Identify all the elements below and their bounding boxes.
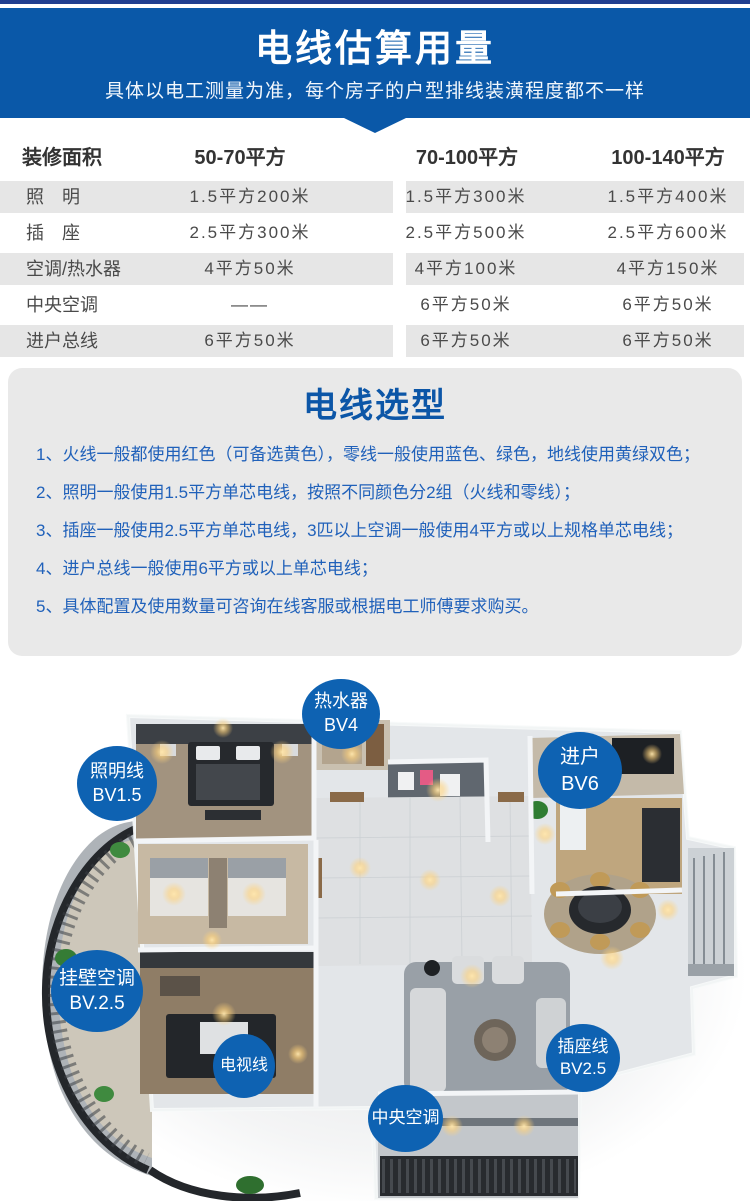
floorplan-label-lighting-line: 照明线 BV1.5 (77, 746, 157, 821)
label-line: 挂壁空调 (59, 966, 135, 991)
label-line: 进户 (560, 744, 600, 770)
row-label: 插 座 (0, 215, 186, 251)
page: 电线估算用量 具体以电工测量为准，每个房子的户型排线装潢程度都不一样 装修面积 … (0, 0, 750, 1203)
label-line: BV1.5 (92, 784, 141, 808)
floorplan-label-entry: 进户 BV6 (538, 732, 622, 809)
label-line: 插座线 (558, 1036, 609, 1058)
label-line: BV4 (324, 714, 358, 738)
selection-title: 电线选型 (8, 384, 742, 428)
wire-usage-table: 装修面积 50-70平方 70-100平方 100-140平方 照 明 1.5平… (0, 133, 750, 359)
cell-value: 4平方100米 (386, 251, 546, 287)
row-label: 照 明 (0, 179, 186, 215)
selection-item-4: 4、进户总线一般使用6平方或以上单芯电线； (36, 556, 722, 581)
row-label: 空调/热水器 (0, 251, 186, 287)
cell-value: 6平方50米 (170, 323, 330, 359)
cell-value: 6平方50米 (386, 323, 546, 359)
header-notch-triangle (344, 118, 406, 133)
table-row: 空调/热水器 4平方50米 4平方100米 4平方150米 (0, 251, 750, 287)
cell-value: 4平方150米 (588, 251, 748, 287)
cell-value: 2.5平方300米 (170, 215, 330, 251)
living-room (404, 956, 570, 1094)
label-line: 照明线 (90, 760, 144, 784)
header-main: 电线估算用量 具体以电工测量为准，每个房子的户型排线装潢程度都不一样 (0, 8, 750, 118)
cell-value: 1.5平方400米 (588, 179, 748, 215)
label-line: BV.2.5 (69, 991, 124, 1016)
page-subtitle: 具体以电工测量为准，每个房子的户型排线装潢程度都不一样 (0, 80, 750, 104)
column-header-70-100: 70-100平方 (387, 141, 547, 175)
label-line: 热水器 (314, 690, 368, 714)
cell-value: 6平方50米 (588, 287, 748, 323)
table-header-row: 装修面积 50-70平方 70-100平方 100-140平方 (0, 141, 750, 175)
page-title: 电线估算用量 (0, 8, 750, 72)
column-header-100-140: 100-140平方 (588, 141, 748, 175)
wire-selection-panel: 电线选型 1、火线一般都使用红色（可备选黄色），零线一般使用蓝色、绿色，地线使用… (8, 368, 742, 656)
cell-value: 1.5平方300米 (386, 179, 546, 215)
floorplan-label-central-ac: 中央空调 (368, 1085, 443, 1152)
selection-list: 1、火线一般都使用红色（可备选黄色），零线一般使用蓝色、绿色，地线使用黄绿双色；… (8, 442, 742, 619)
label-line: 中央空调 (372, 1107, 440, 1129)
label-line: 电视线 (220, 1055, 268, 1076)
cell-value: 1.5平方200米 (170, 179, 330, 215)
column-header-area: 装修面积 (0, 141, 102, 175)
table-row: 进户总线 6平方50米 6平方50米 6平方50米 (0, 323, 750, 359)
selection-item-3: 3、插座一般使用2.5平方单芯电线，3匹以上空调一般使用4平方或以上规格单芯电线… (36, 518, 722, 543)
cell-value-dash: —— (170, 287, 330, 323)
row-label: 进户总线 (0, 323, 186, 359)
cell-value: 6平方50米 (588, 323, 748, 359)
selection-item-5: 5、具体配置及使用数量可咨询在线客服或根据电工师傅要求购买。 (36, 594, 722, 619)
cell-value: 6平方50米 (386, 287, 546, 323)
floorplan-section: 热水器 BV4 进户 BV6 照明线 BV1.5 挂壁空调 BV.2.5 电视线… (0, 658, 750, 1201)
table-row: 照 明 1.5平方200米 1.5平方300米 1.5平方400米 (0, 179, 750, 215)
label-line: BV6 (561, 771, 599, 797)
cell-value: 2.5平方600米 (588, 215, 748, 251)
cell-value: 4平方50米 (170, 251, 330, 287)
table-row: 插 座 2.5平方300米 2.5平方500米 2.5平方600米 (0, 215, 750, 251)
selection-item-2: 2、照明一般使用1.5平方单芯电线，按照不同颜色分2组（火线和零线）； (36, 480, 722, 505)
column-header-50-70: 50-70平方 (160, 141, 320, 175)
header-banner: 电线估算用量 具体以电工测量为准，每个房子的户型排线装潢程度都不一样 (0, 0, 750, 133)
floorplan-label-tv-line: 电视线 (213, 1034, 275, 1098)
bay-window-right (688, 848, 734, 976)
floorplan-label-wall-ac: 挂壁空调 BV.2.5 (51, 950, 143, 1032)
floorplan-label-water-heater: 热水器 BV4 (302, 679, 380, 749)
dining-area (544, 872, 656, 954)
row-label: 中央空调 (0, 287, 186, 323)
table-row: 中央空调 —— 6平方50米 6平方50米 (0, 287, 750, 323)
cell-value: 2.5平方500米 (386, 215, 546, 251)
label-line: BV2.5 (560, 1058, 606, 1080)
floorplan-label-socket-line: 插座线 BV2.5 (546, 1024, 620, 1092)
selection-item-1: 1、火线一般都使用红色（可备选黄色），零线一般使用蓝色、绿色，地线使用黄绿双色； (36, 442, 722, 467)
